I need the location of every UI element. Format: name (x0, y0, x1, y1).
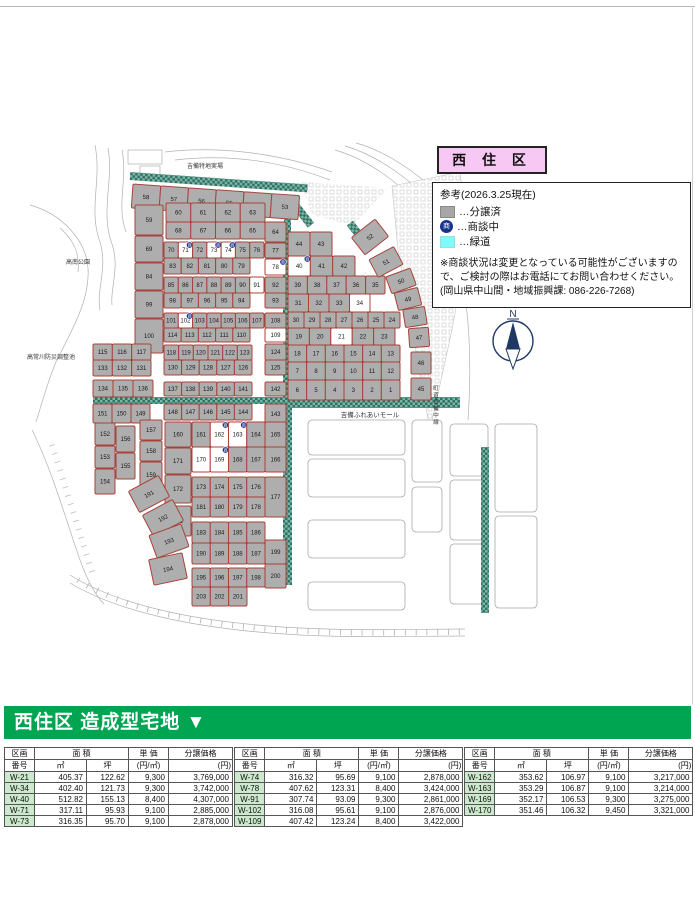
legend-greenway-label: …緑道 (459, 235, 491, 249)
legend-sold-label: …分譲済 (459, 205, 501, 219)
plot-number: 157 (146, 428, 157, 434)
plot-number: 97 (186, 299, 193, 305)
header-unit-price-2: (円/㎡) (589, 760, 629, 772)
legend-note-line2: で、ご検討の際はお電話にてお問い合わせください。 (440, 271, 683, 285)
park-label: 高南公園 (66, 258, 90, 266)
plot-number: 141 (238, 387, 249, 393)
road-label-char: 中 (433, 411, 439, 419)
price-table-1: 区画面 積単 価分譲価格番号㎡坪(円/㎡)(円)W-21405.37122.62… (4, 747, 233, 827)
plot-number: 87 (196, 283, 203, 289)
area-m2-cell: 316.08 (265, 805, 317, 816)
plot-number: 104 (209, 319, 220, 325)
plot-number: 197 (233, 576, 244, 582)
plot-id-cell: W-163 (465, 783, 495, 794)
plot-number: 122 (225, 351, 236, 357)
plot-number: 118 (167, 351, 177, 357)
plot-number: 37 (333, 283, 340, 289)
header-m2: ㎡ (265, 760, 317, 772)
table-row: W-162353.62106.979,1003,217,000 (465, 772, 693, 783)
table-row: W-40512.82155.138,4004,307,000 (5, 794, 233, 805)
unit-price-cell: 9,300 (129, 783, 169, 794)
plot-number: 175 (233, 485, 244, 491)
plot-number: 101 (166, 319, 177, 325)
plot-number: 180 (214, 505, 225, 511)
header-unit-price: 単 価 (359, 748, 399, 760)
legend-negotiating-label: …商談中 (457, 220, 499, 234)
plot-number: 84 (146, 275, 153, 281)
legend-note-line1: ※商談状況は変更となっている可能性がございますの (440, 257, 683, 271)
plot-number: 140 (221, 387, 232, 393)
header-plot-id-2: 番号 (235, 760, 265, 772)
plot-number: 102 (180, 319, 191, 325)
header-area: 面 積 (265, 748, 359, 760)
header-unit-price: 単 価 (129, 748, 169, 760)
table-row: W-163353.29106.879,1003,214,000 (465, 783, 693, 794)
other-block (495, 424, 537, 512)
plot-number: 125 (270, 366, 281, 372)
unit-price-cell: 9,300 (359, 794, 399, 805)
plot-id-cell: W-109 (235, 816, 265, 827)
plot-number: 13 (387, 352, 394, 358)
header-m2: ㎡ (35, 760, 87, 772)
plot-number: 81 (204, 264, 211, 270)
plot-number: 110 (237, 333, 247, 339)
plot-number: 149 (135, 412, 146, 418)
road-label-char: 道 (433, 391, 439, 399)
plot-number: 73 (211, 248, 218, 254)
plot-number: 53 (281, 205, 289, 211)
plot-number: 78 (272, 265, 279, 271)
plot-number: 160 (173, 433, 184, 439)
plot-number: 120 (196, 351, 207, 357)
plot-number: 18 (294, 352, 301, 358)
area-tsubo-cell: 95.61 (317, 805, 359, 816)
area-m2-cell: 316.35 (35, 816, 87, 827)
plot-number: 166 (270, 458, 281, 464)
plot-number: 161 (196, 433, 207, 439)
sale-price-cell: 2,878,000 (399, 772, 463, 783)
badge-glyph: 商 (224, 447, 228, 453)
plot-number: 172 (173, 487, 184, 493)
table-row: W-73316.3595.709,1002,878,000 (5, 816, 233, 827)
unit-price-cell: 8,400 (359, 783, 399, 794)
plot-number: 190 (196, 552, 207, 558)
plot-number: 35 (372, 283, 379, 289)
plot-number: 201 (233, 595, 244, 601)
plot-number: 15 (350, 352, 357, 358)
area-tsubo-cell: 106.87 (547, 783, 589, 794)
area-m2-cell: 407.42 (265, 816, 317, 827)
plot-number: 148 (168, 410, 179, 416)
plot-number: 60 (175, 211, 182, 217)
plot-number: 173 (196, 485, 207, 491)
plot-number: 134 (98, 387, 109, 393)
plot-number: 36 (353, 283, 360, 289)
plot-number: 74 (225, 248, 232, 254)
sale-price-cell: 3,214,000 (629, 783, 693, 794)
plot-number: 68 (175, 229, 182, 235)
road-label-char: 備 (433, 404, 439, 412)
plot-number: 174 (214, 485, 225, 491)
plot-number: 11 (369, 369, 376, 375)
price-table-3: 区画面 積単 価分譲価格番号㎡坪(円/㎡)(円)W-162353.62106.9… (464, 747, 693, 816)
area-tsubo-cell: 106.97 (547, 772, 589, 783)
plot-id-cell: W-78 (235, 783, 265, 794)
section-banner: 西住区 造成型宅地 ▼ (4, 706, 691, 739)
plot-number: 147 (185, 410, 196, 416)
area-tsubo-cell: 93.09 (317, 794, 359, 805)
plot-number: 70 (168, 248, 175, 254)
plot-number: 83 (169, 264, 176, 270)
plot-number: 199 (270, 550, 281, 556)
plot-id-cell: W-71 (5, 805, 35, 816)
badge-glyph: 商 (230, 242, 234, 248)
sold-swatch-icon (440, 206, 455, 218)
header-plot-id-2: 番号 (465, 760, 495, 772)
header-area: 面 積 (495, 748, 589, 760)
area-tsubo-cell: 95.70 (87, 816, 129, 827)
plot-number: 116 (117, 350, 127, 356)
plot-number: 40 (296, 264, 303, 270)
plot-number: 126 (238, 366, 249, 372)
pond-label: 高常川防災調整池 (27, 353, 75, 361)
plot-number: 128 (203, 366, 214, 372)
plot-number: 79 (238, 264, 245, 270)
plot-number: 130 (168, 366, 179, 372)
plot-number: 109 (270, 333, 281, 339)
plot-number: 202 (214, 595, 225, 601)
badge-glyph: 商 (216, 242, 220, 248)
badge-glyph: 商 (305, 256, 309, 262)
legend-item-greenway: …緑道 (440, 234, 683, 249)
plot-number: 47 (416, 335, 424, 341)
sale-price-cell: 3,742,000 (169, 783, 233, 794)
plot-number: 176 (251, 485, 262, 491)
plot-number: 186 (251, 531, 262, 537)
plot-number: 58 (142, 195, 150, 201)
header-plot-id: 区画 (5, 748, 35, 760)
plot-number: 177 (270, 495, 281, 501)
plot-number: 127 (221, 366, 232, 372)
header-tsubo: 坪 (317, 760, 359, 772)
other-block (308, 459, 405, 497)
plot-number: 64 (272, 230, 279, 236)
plot-number: 61 (200, 211, 207, 217)
plot-number: 129 (185, 366, 196, 372)
area-tsubo-cell: 106.32 (547, 805, 589, 816)
plot-number: 71 (182, 248, 189, 254)
plot-number: 139 (203, 387, 214, 393)
plot-number: 38 (314, 283, 321, 289)
table-row: W-170351.46106.329,4503,321,000 (465, 805, 693, 816)
plot-number: 44 (296, 242, 303, 248)
header-sale-price-2: (円) (399, 760, 463, 772)
plot-number: 99 (146, 303, 153, 309)
plot-number: 24 (389, 318, 396, 324)
plot-number: 77 (272, 249, 279, 255)
area-m2-cell: 317.11 (35, 805, 87, 816)
area-tsubo-cell: 123.31 (317, 783, 359, 794)
plot-number: 170 (196, 458, 207, 464)
plot-number: 155 (120, 464, 131, 470)
plot-number: 150 (116, 412, 127, 418)
area-m2-cell: 351.46 (495, 805, 547, 816)
plot-number: 111 (220, 333, 230, 339)
header-unit-price-2: (円/㎡) (359, 760, 399, 772)
sale-price-cell: 3,321,000 (629, 805, 693, 816)
legend-item-sold: …分譲済 (440, 204, 683, 219)
badge-glyph: 商 (242, 422, 246, 428)
mall-label: 吉備ふれあいモール (341, 410, 400, 419)
sale-price-cell: 4,307,000 (169, 794, 233, 805)
plot-number: 22 (360, 335, 367, 341)
plot-number: 195 (196, 576, 207, 582)
plot-number: 95 (221, 299, 228, 305)
sale-price-cell: 3,769,000 (169, 772, 233, 783)
plot-number: 26 (357, 318, 364, 324)
plot-number: 113 (185, 333, 195, 339)
sale-price-cell: 3,217,000 (629, 772, 693, 783)
plot-number: 152 (100, 432, 111, 438)
plot-number: 200 (270, 574, 281, 580)
plot-number: 94 (238, 299, 245, 305)
sale-price-cell: 2,878,000 (169, 816, 233, 827)
table-row: W-78407.62123.318,4003,424,000 (235, 783, 463, 794)
plot-number: 93 (272, 299, 279, 305)
plot-number: 92 (272, 283, 279, 289)
plot-number: 39 (294, 283, 301, 289)
header-sale-price: 分譲価格 (399, 748, 463, 760)
plot-number: 91 (254, 283, 261, 289)
legend-heading: 参考(2026.3.25現在) (440, 188, 683, 202)
badge-glyph: 商 (281, 259, 285, 265)
header-tsubo: 坪 (87, 760, 129, 772)
area-m2-cell: 316.32 (265, 772, 317, 783)
plot-number: 132 (117, 366, 128, 372)
plot-number: 121 (210, 351, 221, 357)
plot-number: 114 (168, 333, 178, 339)
plot-number: 19 (295, 335, 302, 341)
plot-number: 167 (251, 458, 262, 464)
table-row: W-74316.3295.699,1002,878,000 (235, 772, 463, 783)
plot-number: 158 (146, 449, 157, 455)
plot-number: 117 (137, 350, 147, 356)
plot-number: 184 (214, 531, 225, 537)
area-tsubo-cell: 122.62 (87, 772, 129, 783)
plot-number: 90 (239, 283, 246, 289)
area-m2-cell: 307.74 (265, 794, 317, 805)
plot-number: 107 (252, 319, 263, 325)
plot-number: 124 (270, 350, 281, 356)
table-row: W-169352.17106.539,3003,275,000 (465, 794, 693, 805)
plot-number: 89 (225, 283, 232, 289)
area-m2-cell: 402.40 (35, 783, 87, 794)
plot-number: 32 (315, 301, 322, 307)
unit-price-cell: 9,100 (589, 783, 629, 794)
plot-number: 20 (317, 335, 324, 341)
unit-price-cell: 9,100 (129, 805, 169, 816)
header-area: 面 積 (35, 748, 129, 760)
sale-price-cell: 3,424,000 (399, 783, 463, 794)
area-tsubo-cell: 95.93 (87, 805, 129, 816)
plot-number: 69 (146, 247, 153, 253)
district-title: 西 住 区 (452, 150, 532, 170)
plot-number: 131 (136, 366, 147, 372)
north-compass-icon: N (493, 309, 533, 369)
header-unit-price-2: (円/㎡) (129, 760, 169, 772)
legend-note: ※商談状況は変更となっている可能性がございますの で、ご検討の際はお電話にてお問… (440, 257, 683, 299)
plot-number: 187 (251, 552, 262, 558)
unit-price-cell: 8,400 (359, 816, 399, 827)
plot-number: 65 (249, 229, 256, 235)
plot-number: 103 (195, 319, 206, 325)
header-plot-id: 区画 (235, 748, 265, 760)
legend-note-line3: (岡山県中山間・地域振興課: 086-226-7268) (440, 285, 683, 299)
plot-number: 98 (169, 299, 176, 305)
plot-number: 133 (98, 366, 109, 372)
other-block (412, 487, 442, 532)
plot-number: 42 (340, 264, 347, 270)
plot-id-cell: W-73 (5, 816, 35, 827)
plot-number: 45 (418, 387, 425, 393)
plot-number: 30 (293, 318, 300, 324)
plot-number: 143 (270, 412, 281, 418)
plot-id-cell: W-162 (465, 772, 495, 783)
plot-number: 146 (203, 410, 214, 416)
negotiating-badge-icon: 商 (440, 220, 453, 233)
price-table-2: 区画面 積単 価分譲価格番号㎡坪(円/㎡)(円)W-74316.3295.699… (234, 747, 463, 827)
area-m2-cell: 353.62 (495, 772, 547, 783)
unit-price-cell: 9,450 (589, 805, 629, 816)
plot-number: 137 (168, 387, 179, 393)
plot-number: 145 (221, 410, 232, 416)
plot-number: 46 (418, 361, 425, 367)
road-label-char: 吉 (433, 399, 439, 406)
plot-number: 43 (318, 242, 325, 248)
legend-item-negotiating: 商 …商談中 (440, 219, 683, 234)
sale-price-cell: 2,876,000 (399, 805, 463, 816)
plot-id-cell: W-40 (5, 794, 35, 805)
greenway-band (93, 397, 283, 404)
plot-number: 168 (233, 458, 244, 464)
plot-number: 16 (331, 352, 338, 358)
area-tsubo-cell: 155.13 (87, 794, 129, 805)
plot-number: 181 (196, 505, 207, 511)
plot-number: 86 (182, 283, 189, 289)
header-tsubo: 坪 (547, 760, 589, 772)
plot-id-cell: W-21 (5, 772, 35, 783)
other-block (308, 582, 405, 610)
plot-number: 63 (249, 211, 256, 217)
plot-number: 67 (200, 229, 207, 235)
plot-number: 178 (251, 505, 262, 511)
plot-number: 153 (100, 455, 111, 461)
header-sale-price-2: (円) (169, 760, 233, 772)
plot-number: 17 (313, 352, 320, 358)
plot-number: 14 (369, 352, 376, 358)
unit-price-cell: 9,300 (129, 772, 169, 783)
table-row: W-71317.1195.939,1002,885,000 (5, 805, 233, 816)
badge-glyph: 商 (224, 422, 228, 428)
plot-number: 156 (120, 437, 131, 443)
plot-number: 31 (295, 301, 302, 307)
section-banner-label: 西住区 造成型宅地 ▼ (14, 712, 206, 733)
header-sale-price: 分譲価格 (169, 748, 233, 760)
badge-glyph: 商 (188, 313, 192, 319)
plot-number: 154 (100, 480, 111, 486)
plot-number: 183 (196, 531, 207, 537)
plot-number: 25 (373, 318, 380, 324)
plot-number: 75 (239, 248, 246, 254)
area-m2-cell: 352.17 (495, 794, 547, 805)
top-area-label: 吉備特地実場 (187, 162, 223, 170)
area-tsubo-cell: 123.24 (317, 816, 359, 827)
table-row: W-91307.7493.099,3002,861,000 (235, 794, 463, 805)
plot-number: 41 (318, 264, 325, 270)
district-title-box: 西 住 区 (437, 146, 547, 174)
plot-number: 164 (251, 433, 262, 439)
header-plot-id-2: 番号 (5, 760, 35, 772)
plot-number: 119 (181, 351, 191, 357)
other-block (308, 520, 405, 558)
plot-id-cell: W-91 (235, 794, 265, 805)
unit-price-cell: 9,300 (589, 794, 629, 805)
plot-number: 108 (270, 319, 281, 325)
table-row: W-109407.42123.248,4003,422,000 (235, 816, 463, 827)
plot-number: 198 (251, 576, 262, 582)
unit-price-cell: 9,100 (359, 805, 399, 816)
plot-id-cell: W-170 (465, 805, 495, 816)
plot-number: 10 (350, 369, 357, 375)
area-tsubo-cell: 121.73 (87, 783, 129, 794)
plot-number: 28 (325, 318, 332, 324)
greenway-band (481, 447, 489, 613)
badge-glyph: 商 (188, 242, 192, 248)
plot-id-cell: W-169 (465, 794, 495, 805)
header-unit-price: 単 価 (589, 748, 629, 760)
plot-number: 162 (214, 433, 225, 439)
area-tsubo-cell: 106.53 (547, 794, 589, 805)
area-m2-cell: 353.29 (495, 783, 547, 794)
district-map: 5857565554535969849910060616263686766657… (0, 0, 695, 705)
sale-price-cell: 2,885,000 (169, 805, 233, 816)
header-sale-price-2: (円) (629, 760, 693, 772)
plot-number: 138 (185, 387, 196, 393)
plot-number: 23 (381, 335, 388, 341)
plot-number: 21 (338, 335, 345, 341)
plot-id-cell: W-34 (5, 783, 35, 794)
plot-number: 203 (196, 595, 207, 601)
table-row: W-102316.0895.619,1002,876,000 (235, 805, 463, 816)
area-m2-cell: 407.62 (265, 783, 317, 794)
other-block (412, 420, 442, 482)
unit-price-cell: 9,100 (359, 772, 399, 783)
plot-number: 169 (214, 458, 225, 464)
plot-number: 72 (196, 248, 203, 254)
table-row: W-34402.40121.739,3003,742,000 (5, 783, 233, 794)
area-m2-cell: 512.82 (35, 794, 87, 805)
plot-number: 66 (225, 229, 232, 235)
plot-number: 142 (270, 387, 281, 393)
legend-panel: 参考(2026.3.25現在) …分譲済 商 …商談中 …緑道 ※商談状況は変更… (432, 182, 691, 308)
plot-number: 115 (98, 350, 108, 356)
plot-number: 80 (221, 264, 228, 270)
other-block (495, 516, 537, 608)
greenway-swatch-icon (440, 236, 455, 248)
plot-number: 185 (233, 531, 244, 537)
plot-number: 165 (270, 433, 281, 439)
plot-number: 82 (186, 264, 193, 270)
